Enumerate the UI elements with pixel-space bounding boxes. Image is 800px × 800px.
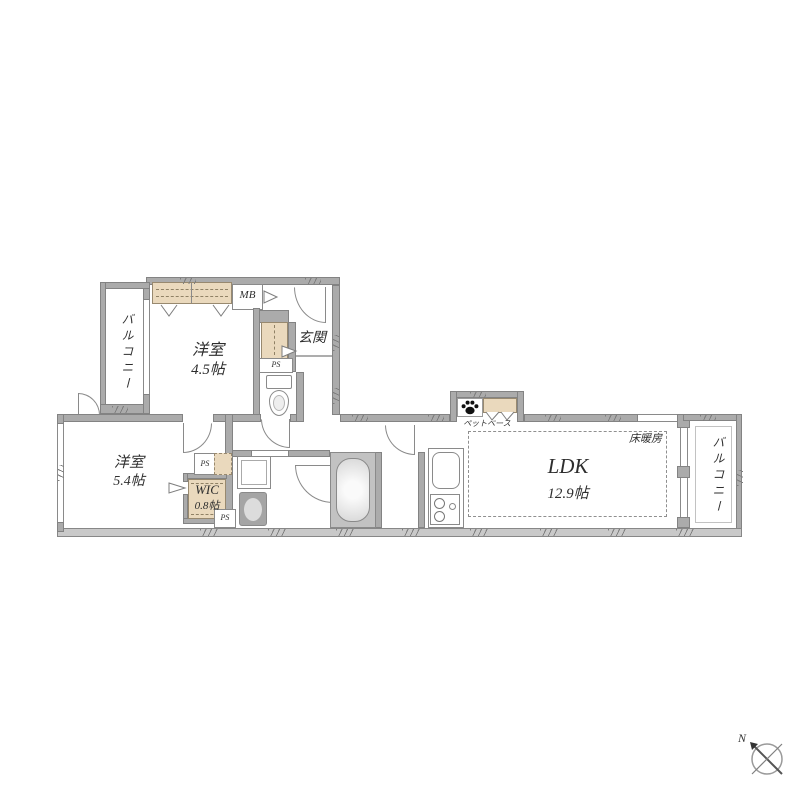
wall-bath-right [375,452,382,528]
toilet-bowl-inner [273,395,285,411]
hatch-mark [402,529,420,536]
closet-room-a [152,282,232,304]
wall-bottom [57,528,742,537]
entrance-door-leaf [325,287,326,323]
wall-balcony-left-outer [100,282,106,415]
room-a-label: 洋室 4.5帖 [168,341,248,379]
ldk-size: 12.9帖 [547,486,588,502]
balcony-partition-door-leaf [78,393,79,415]
bath-door-leaf [295,465,333,466]
wall-ldk-left [418,452,425,528]
bathtub [336,458,370,522]
closet-hanger-line-2 [156,296,228,297]
toilet-door-leaf [289,419,290,448]
wic-name: WIC [195,482,219,497]
closet-fold-mark-2 [212,304,230,317]
duct-box [214,453,232,475]
hatch-mark [112,406,128,413]
kitchen-sink [432,452,460,489]
washing-machine-inner [241,460,267,485]
hatch-mark [428,415,444,421]
wall-window-mullion [677,466,690,478]
closet-fold-mark-1 [160,304,178,317]
wall-left-top-corner [57,414,64,424]
ldk-door-arc [385,425,415,455]
toilet-tank [266,375,292,389]
hatch-mark [352,415,368,421]
stove-burner-1 [434,498,445,509]
closet-divider [191,283,192,303]
hatch-mark [470,529,488,536]
wall-left-bottom-corner [57,522,64,532]
bath-door-arc [295,465,333,503]
hatch-mark [268,529,286,536]
ldk-label: LDK 12.9帖 [508,454,628,504]
pipe-space-entrance-label: PS [259,360,293,370]
wic-size: 0.8帖 [195,500,220,512]
hatch-mark [305,278,321,284]
ldk-name: LDK [548,454,589,478]
hatch-mark [605,415,621,421]
hatch-mark [336,529,354,536]
hatch-mark [540,529,558,536]
room-b-door-leaf [183,423,184,453]
entrance-door-arc [294,287,326,323]
hatch-mark [608,529,626,536]
room-b-label: 洋室 5.4帖 [94,454,164,491]
hatch-mark [200,529,218,536]
entrance-label: 玄関 [293,331,331,348]
stove-burner-2 [434,511,445,522]
hatch-mark [545,415,561,421]
mb-door-arrow [263,289,279,305]
closet-hanger-line-1 [156,289,228,290]
pipe-space-upper-label: PS [194,459,216,469]
hatch-mark [333,335,339,351]
wall-window-bottom [677,517,690,528]
shoe-box-divider [274,325,275,355]
balcony-partition-door-arc [78,393,100,415]
wic-door-arrow [168,481,187,495]
pet-space-label: ペットベース [452,419,522,429]
wic-label: WIC 0.8帖 [187,483,227,513]
room-a-size: 4.5帖 [191,362,225,378]
window-ldk-right-2 [680,478,688,517]
balcony-left-label: バルコニー [112,302,134,404]
compass-icon: N [736,728,796,788]
floor-plan-canvas: MB PS [0,0,800,800]
wall-window-a-top [143,288,150,300]
room-b-size: 5.4帖 [113,474,145,489]
room-a-name: 洋室 [192,342,224,359]
balcony-right-label: バルコニー [703,432,725,520]
compass-north-label: N [737,731,747,745]
hatch-mark [333,388,339,404]
meter-box-label: MB [232,289,263,302]
window-room-a [143,300,150,394]
wall-pet-top [450,391,524,398]
entrance-step-line [296,355,332,357]
wall-pet-left [450,391,457,422]
hatch-mark [700,415,716,421]
hatch-mark [470,392,486,398]
wall-strip-top-1 [57,414,183,422]
floor-heating-label: 床暖房 [588,433,662,446]
hatch-mark [676,529,694,536]
wall-washroom-top-2 [288,450,330,457]
paw-icon [461,399,479,416]
hatch-mark [180,278,196,284]
kitchen-stove [430,494,460,525]
window-ldk-top [638,414,677,422]
wall-toilet-right [296,372,304,422]
ldk-door-leaf [414,425,415,455]
stove-knob [449,503,456,510]
wall-window-a-bottom [143,394,150,414]
room-b-name: 洋室 [114,455,144,471]
toilet-door-arc [261,419,290,448]
hatch-mark [58,465,64,481]
hatch-mark [737,470,743,486]
wall-strip-top-3 [290,414,297,422]
washbasin-bowl [244,498,262,521]
wall-strip-top-2 [213,414,261,422]
wall-pet-right [517,391,524,422]
room-b-door-arc [183,423,212,453]
pipe-space-lower-label: PS [214,513,236,523]
window-ldk-right-1 [680,428,688,466]
